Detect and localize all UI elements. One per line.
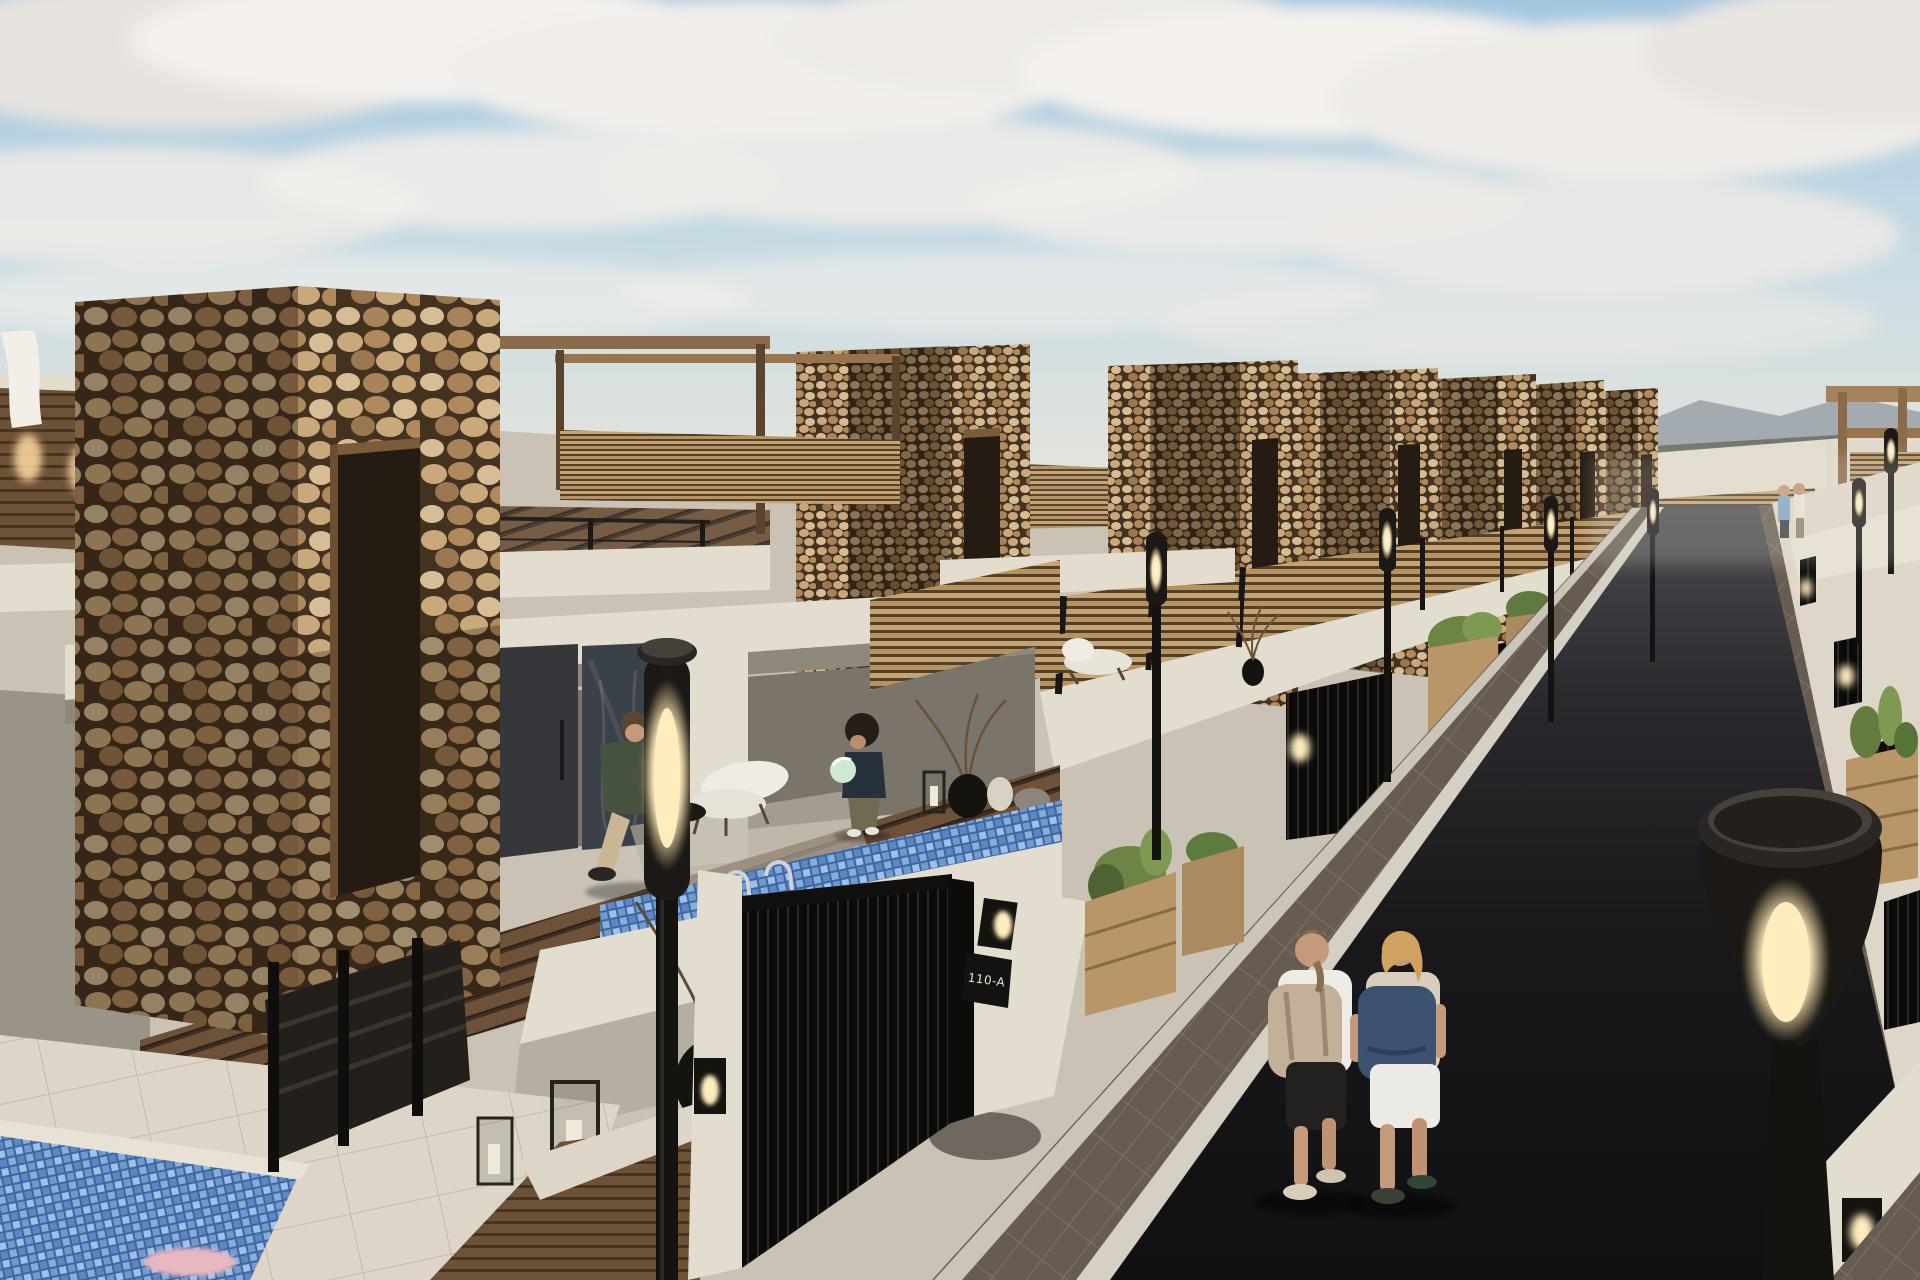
door-handle — [560, 720, 564, 780]
right-gate-4 — [1884, 890, 1920, 1030]
gate-lantern-right — [977, 898, 1017, 950]
gate-plaque: 110-A — [962, 952, 1012, 1008]
tower-1 — [75, 286, 500, 1040]
render-canvas: 110-A — [0, 0, 1920, 1280]
downlight-glow — [14, 434, 42, 482]
black-capris — [1286, 1062, 1346, 1130]
lantern-glow — [1838, 665, 1854, 687]
lantern-glow — [1800, 579, 1812, 597]
distance-haze — [1590, 455, 1920, 565]
pink-towel — [144, 1248, 236, 1276]
gate-lantern-glow — [1290, 734, 1310, 762]
entry-door — [498, 644, 578, 858]
tower-window — [330, 438, 420, 898]
gate-lantern-left — [694, 1058, 726, 1114]
white-shorts — [1370, 1064, 1440, 1128]
scene-svg: 110-A — [0, 0, 1920, 1280]
ball — [830, 757, 856, 783]
